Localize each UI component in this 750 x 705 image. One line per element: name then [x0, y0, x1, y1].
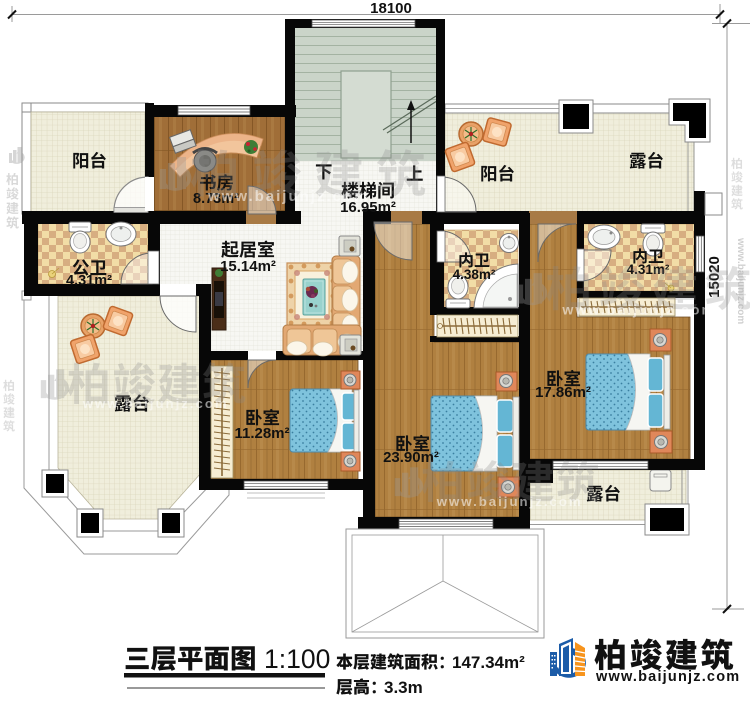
- svg-text:15.14m²: 15.14m²: [220, 258, 276, 275]
- svg-text:www.baijunjz.com: www.baijunjz.com: [207, 188, 369, 205]
- svg-text:147.34m²: 147.34m²: [452, 653, 525, 672]
- svg-text:www.baijunjz.com: www.baijunjz.com: [82, 396, 229, 411]
- svg-text:www.baijunjz.com: www.baijunjz.com: [735, 237, 746, 324]
- svg-text:1:100: 1:100: [264, 644, 330, 674]
- svg-text:3.3m: 3.3m: [384, 678, 423, 697]
- svg-text:11.28m²: 11.28m²: [234, 425, 289, 442]
- svg-text:18100: 18100: [370, 0, 412, 17]
- svg-text:4.31m²: 4.31m²: [66, 273, 112, 289]
- svg-text:www.baijunjz.com: www.baijunjz.com: [595, 669, 740, 685]
- svg-text:www.baijunjz.com: www.baijunjz.com: [436, 494, 583, 509]
- svg-text:4.38m²: 4.38m²: [453, 267, 496, 282]
- svg-text:www.baijunjz.com: www.baijunjz.com: [561, 301, 716, 317]
- svg-text:17.86m²: 17.86m²: [535, 384, 591, 401]
